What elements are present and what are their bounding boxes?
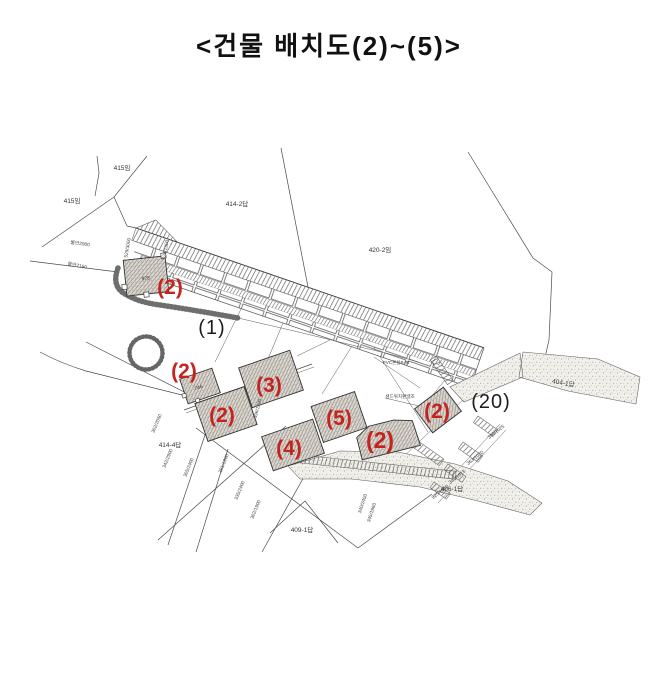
red-label-2c: (2)	[209, 404, 235, 427]
survey-label: 물안2900	[70, 239, 91, 249]
spec-label-pvc: PVC온실B+B	[383, 359, 410, 365]
parcel-415b: 415임	[64, 197, 81, 205]
survey-label: 302/1900	[250, 499, 263, 520]
red-label-2b: (2)	[171, 360, 197, 383]
parcel-415a: 415임	[114, 164, 131, 172]
red-label-2e: (2)	[424, 400, 450, 423]
parcel-414-4: 414-4답	[159, 441, 182, 449]
survey-label: 529/3000	[123, 237, 132, 258]
survey-label: 342/2900	[162, 448, 175, 469]
red-label-4: (4)	[276, 437, 302, 460]
red-label-2d: (2)	[366, 427, 394, 453]
survey-label: 물안7160	[67, 260, 88, 270]
building-number-975: 975	[141, 276, 150, 283]
parcel-420-2: 420-2임	[369, 246, 392, 254]
document-page: <건물 배치도(2)~(5)>	[0, 0, 658, 700]
survey-label: 335/2400	[234, 480, 247, 501]
area-label-1: (1)	[198, 317, 225, 339]
survey-label: 302/2050	[151, 413, 164, 434]
parcel-409-1: 409-1답	[291, 526, 314, 534]
survey-label: 345/1960	[366, 502, 378, 523]
round-stone-feature	[130, 337, 163, 370]
spec-label-panel: 샌드위치판넬조	[385, 393, 415, 400]
area-label-20: (20)	[471, 391, 511, 413]
site-plan-drawing: (2) (2) (2) (3) (5) (4) (2) (2) (1) (20)…	[0, 0, 658, 700]
parcel-414-2: 414-2답	[226, 200, 249, 208]
survey-label: 340/2400	[357, 493, 369, 514]
red-label-2a: (2)	[157, 276, 183, 299]
survey-label: 381/1900	[218, 453, 231, 474]
red-label-3: (3)	[256, 374, 282, 397]
red-label-5: (5)	[326, 407, 352, 430]
